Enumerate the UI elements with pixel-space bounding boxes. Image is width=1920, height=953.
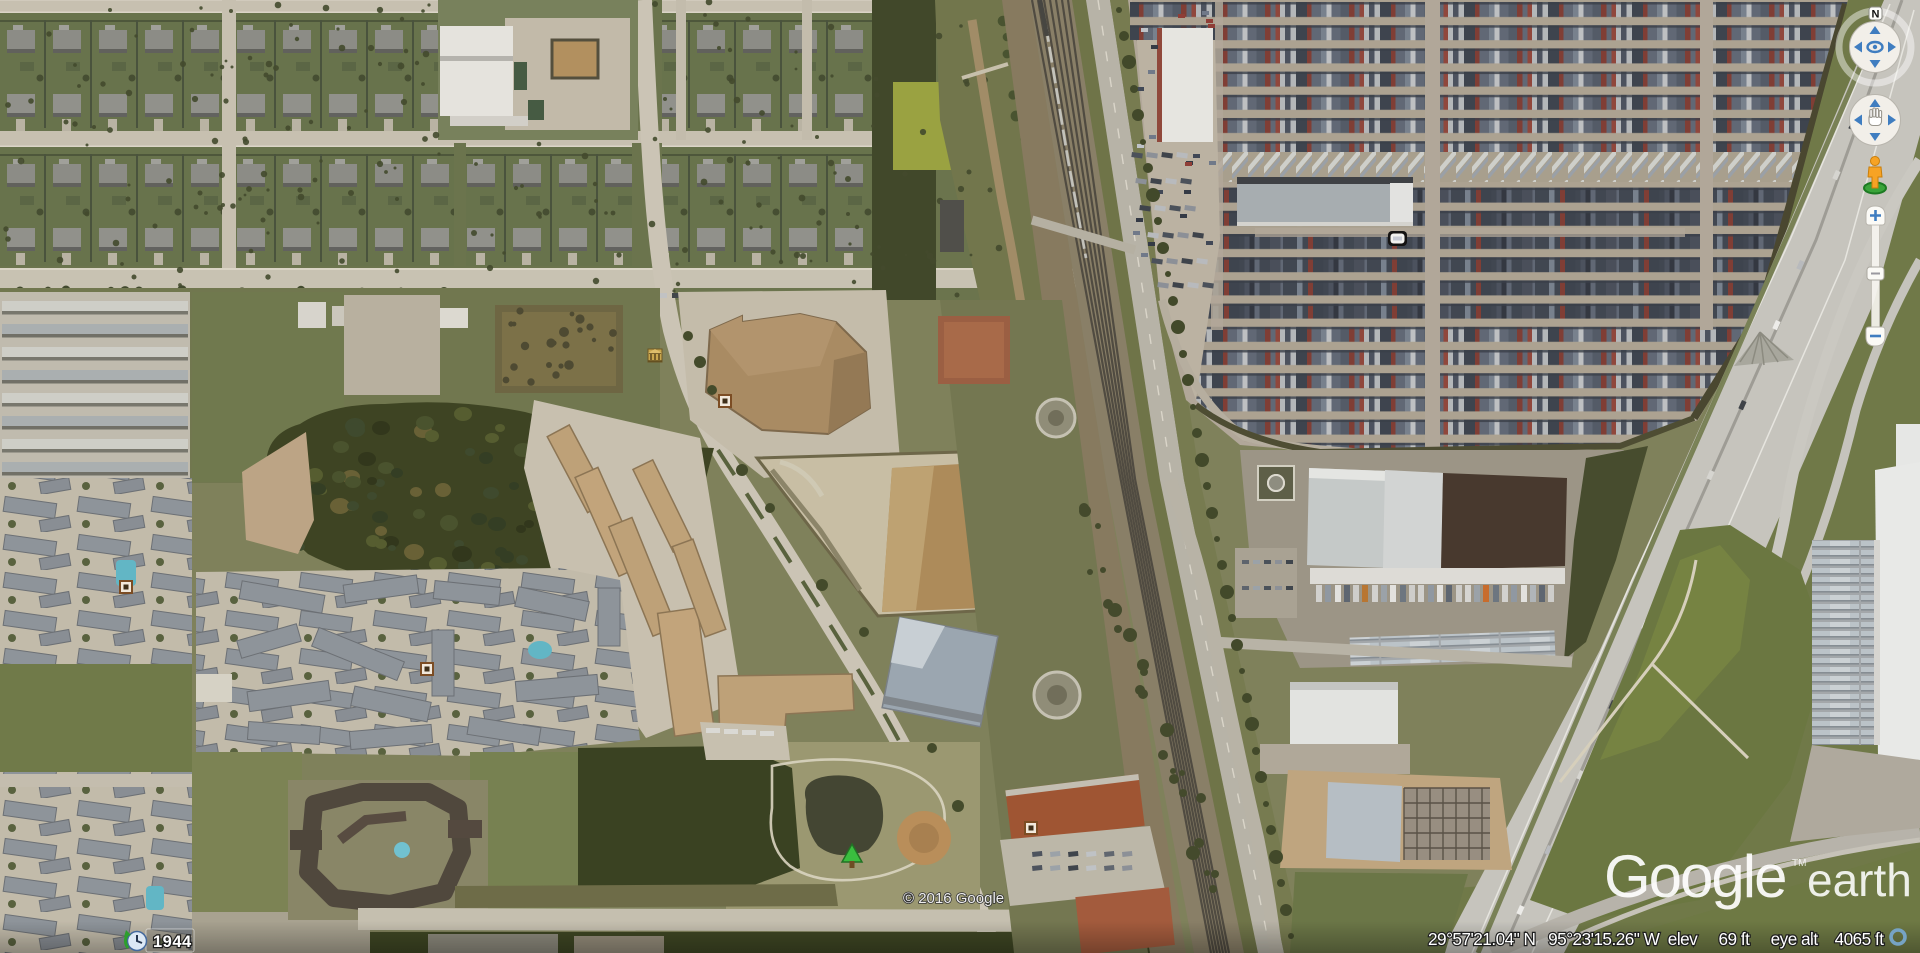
svg-text:TM: TM: [1792, 858, 1806, 869]
svg-text:Google: Google: [1604, 843, 1785, 910]
svg-text:earth: earth: [1807, 854, 1912, 906]
svg-text:29°57'21.04" N 95°23'15.26": 29°57'21.04" N 95°23'15.26" W elev 69 ft…: [1428, 929, 1884, 949]
svg-text:N: N: [1872, 9, 1880, 21]
svg-text:1944: 1944: [153, 933, 192, 951]
svg-text:© 2016 Google: © 2016 Google: [903, 890, 1004, 907]
